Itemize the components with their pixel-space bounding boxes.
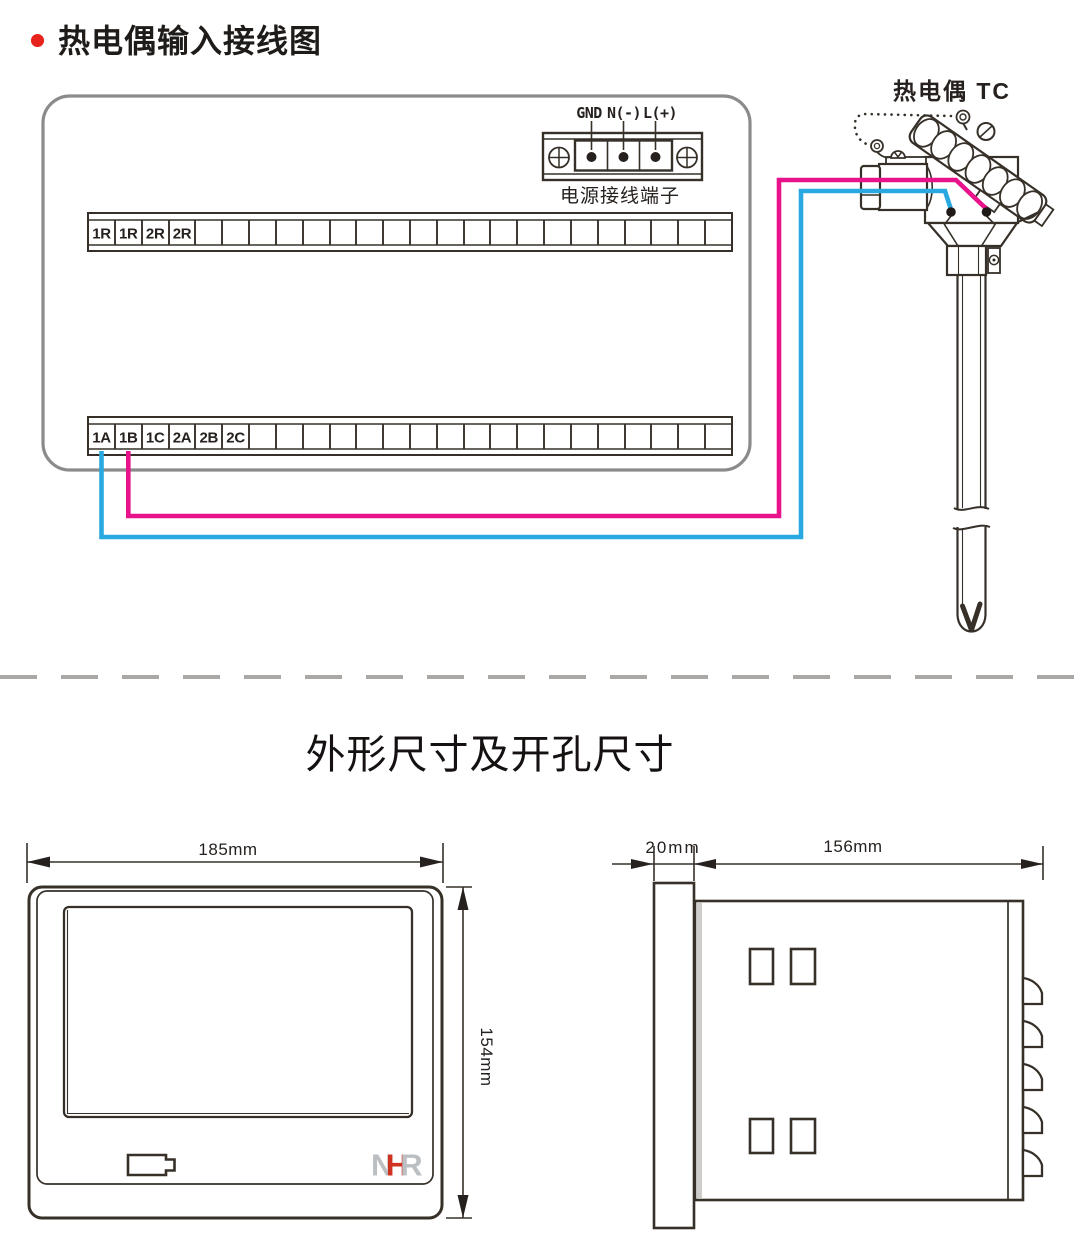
- tc-gland-nut: [861, 166, 880, 209]
- side-front-panel: [654, 883, 694, 1228]
- tc-collar-screw-icon: [988, 248, 1000, 273]
- height-dimension: 154mm: [446, 887, 496, 1218]
- arrow-right-icon: [420, 857, 443, 868]
- terminal-cell-label: 2R: [146, 226, 165, 243]
- lower-terminal-strip: 1A 1B 1C 2A 2B 2C: [88, 417, 732, 455]
- upper-terminal-strip: 1R 1R 2R 2R: [88, 213, 732, 251]
- tc-head-cylinder: [879, 164, 927, 210]
- thermocouple-label: 热电偶 TC: [893, 78, 1011, 104]
- terminal-cell-label: 2A: [173, 430, 192, 447]
- neutral-label: N(-): [607, 104, 641, 122]
- front-width-value: 185mm: [198, 840, 257, 859]
- power-terminal-caption: 电源接线端子: [560, 185, 680, 207]
- tc-ring-screw-icon: [957, 111, 970, 131]
- front-bezel: [37, 891, 433, 1184]
- tc-dome-screw-icon: [891, 151, 905, 158]
- dimension-drawings: 185mm NHR 154mm: [0, 800, 1080, 1246]
- arrow-left-icon: [694, 859, 716, 869]
- terminal-cell-label: 1A: [92, 430, 111, 447]
- depth-dimensions: 20mm 156mm: [612, 837, 1043, 881]
- tc-terminal-dot: [946, 207, 956, 217]
- arrow-up-icon: [458, 887, 469, 910]
- front-view: 185mm NHR 154mm: [27, 840, 496, 1218]
- terminal-cell-label: 1C: [146, 430, 165, 447]
- logo-letter-r: R: [400, 1148, 422, 1183]
- width-dimension: 185mm: [27, 840, 443, 883]
- usb-slot-icon: [128, 1155, 175, 1175]
- tc-probe-tube: [953, 275, 990, 632]
- l-terminal-dot: [651, 152, 661, 162]
- panel-depth-value: 20mm: [645, 838, 700, 857]
- terminal-cell-label: 2B: [200, 430, 219, 447]
- tc-junction-mark: [963, 604, 981, 630]
- power-terminal-block: GND N(-) L(+) 电源接线端子: [543, 104, 702, 207]
- wire-blue: [102, 191, 951, 537]
- line-label: L(+): [643, 104, 677, 122]
- wiring-diagram: GND N(-) L(+) 电源接线端子 1R 1R 2R 2R 1A 1B 1…: [0, 0, 1080, 700]
- screw-icon: [549, 148, 569, 168]
- tc-ring-screw-icon: [871, 140, 893, 157]
- arrow-left-icon: [27, 857, 50, 868]
- screw-icon: [677, 148, 697, 168]
- gnd-terminal-dot: [587, 152, 597, 162]
- thermocouple-assembly: 热电偶 TC: [855, 78, 1057, 632]
- terminal-cell-label: 2C: [226, 430, 245, 447]
- tc-neck: [928, 223, 1017, 246]
- vent-holes: [750, 949, 815, 1153]
- tube-break-mark: [953, 507, 990, 529]
- terminal-cell-label: 1R: [119, 226, 138, 243]
- terminal-cell-label: 2R: [173, 226, 192, 243]
- page: 热电偶输入接线图 GND N(-) L(+) 电: [0, 0, 1080, 1246]
- front-display: [64, 907, 412, 1117]
- signal-wires: [102, 180, 992, 537]
- side-body: [695, 901, 1023, 1200]
- wire-pink: [128, 180, 986, 516]
- tc-terminal-dot: [982, 207, 992, 217]
- terminal-cell-label: 1R: [92, 226, 111, 243]
- tc-collar: [947, 246, 986, 275]
- arrow-down-icon: [458, 1195, 469, 1218]
- front-height-value: 154mm: [477, 1027, 496, 1086]
- n-terminal-dot: [619, 152, 629, 162]
- terminal-cell-label: 1B: [119, 430, 138, 447]
- dimensions-section-title: 外形尺寸及开孔尺寸: [0, 722, 980, 780]
- arrow-right-icon: [631, 859, 653, 869]
- brand-logo: NHR: [371, 1148, 422, 1183]
- tc-cap-screw-icon: [978, 123, 995, 140]
- side-view: 20mm 156mm: [612, 837, 1043, 1228]
- body-depth-value: 156mm: [823, 837, 882, 856]
- arrow-right-icon: [1021, 859, 1043, 869]
- rear-terminal-teeth: [1023, 978, 1042, 1176]
- gnd-label: GND: [576, 104, 602, 122]
- recorder-outline: [43, 96, 750, 470]
